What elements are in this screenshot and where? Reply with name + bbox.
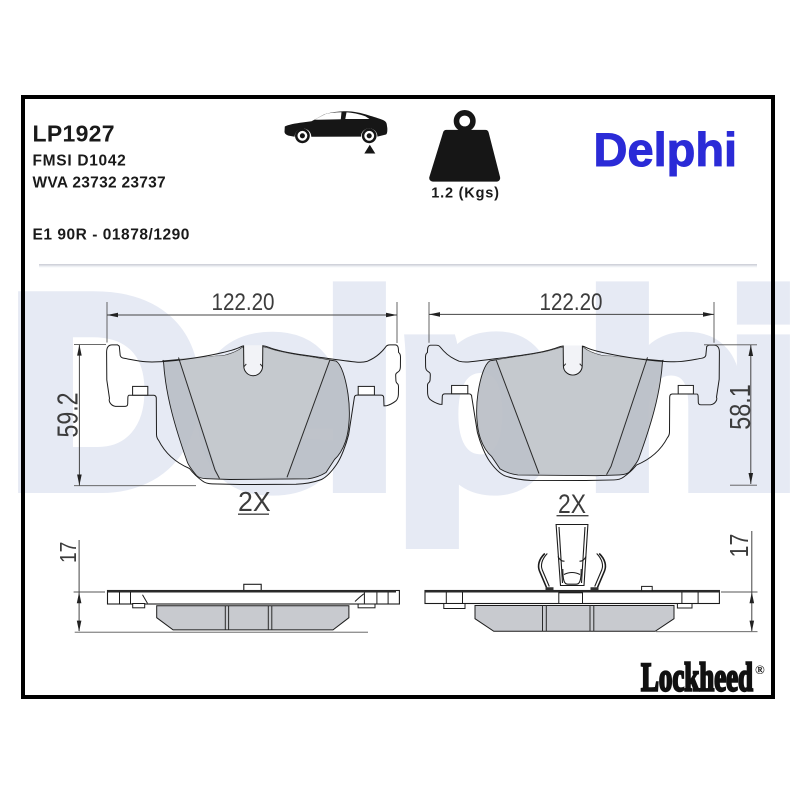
svg-text:59.2: 59.2 <box>53 393 85 438</box>
svg-text:58.1: 58.1 <box>725 384 757 430</box>
svg-text:FMSI D1042: FMSI D1042 <box>33 153 127 170</box>
svg-text:2X: 2X <box>238 486 271 517</box>
svg-text:1.2 (Kgs): 1.2 (Kgs) <box>431 186 499 202</box>
svg-text:E1 90R - 01878/1290: E1 90R - 01878/1290 <box>33 227 190 244</box>
svg-text:17: 17 <box>55 542 81 564</box>
svg-text:122.20: 122.20 <box>540 289 603 316</box>
svg-text:2X: 2X <box>558 489 586 519</box>
svg-text:WVA 23732 23737: WVA 23732 23737 <box>33 174 166 191</box>
svg-text:LP1927: LP1927 <box>33 121 115 147</box>
svg-text:®: ® <box>755 662 765 677</box>
svg-text:17: 17 <box>724 534 754 558</box>
svg-text:Delphi: Delphi <box>594 123 738 176</box>
svg-text:122.20: 122.20 <box>212 289 275 316</box>
svg-text:Lockheed: Lockheed <box>641 655 753 700</box>
